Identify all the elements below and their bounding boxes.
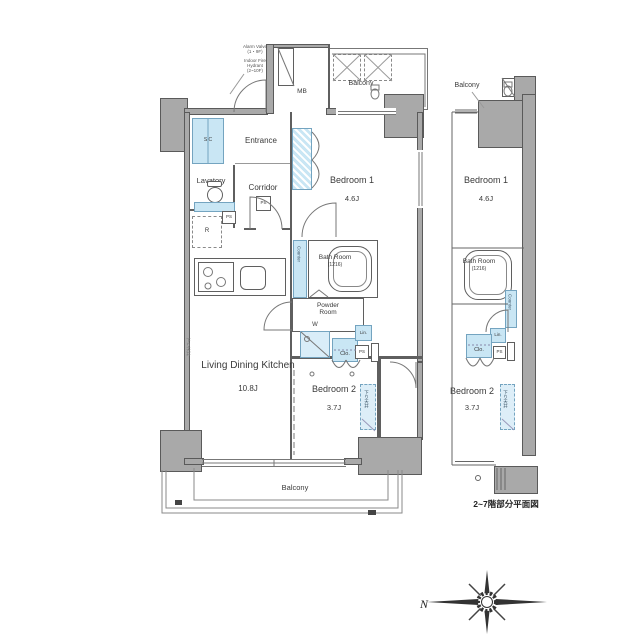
- bathroom-label: Bath Room: [304, 254, 366, 261]
- sub-bathroom-label: Bath Room: [450, 258, 508, 265]
- counter-label: Counter: [296, 246, 301, 262]
- wall-segment: [358, 437, 422, 475]
- partition: [244, 228, 256, 230]
- bedroom1-size: 4.6J: [312, 195, 392, 204]
- symbol-circle: [310, 372, 314, 376]
- sub-ps-label: PS: [493, 349, 506, 354]
- sub-plan-caption: 2~7階部分平面図: [450, 500, 562, 510]
- meter-slot: [371, 343, 379, 362]
- wall-segment: [478, 100, 526, 148]
- compass-ew-spike: [427, 599, 547, 606]
- washer-pan: [300, 331, 330, 358]
- symbol-circle: [350, 372, 354, 376]
- sub-linen-label: Lin.: [490, 332, 506, 337]
- corridor-label: Corridor: [236, 183, 290, 192]
- wall-segment: [184, 112, 190, 464]
- compass-ns-spike: [484, 570, 491, 634]
- wall-segment: [266, 44, 330, 48]
- partition: [377, 358, 381, 438]
- linen-label: Lin.: [355, 330, 372, 335]
- note-leader-line: [230, 74, 244, 94]
- balcony-hatch-box: [333, 54, 361, 81]
- wall-segment: [160, 430, 202, 472]
- lowered-ceiling-label: 下り天井: [364, 390, 369, 408]
- sub-lowered-ceiling-label: 下り天井: [503, 390, 508, 408]
- wall-segment: [522, 94, 536, 456]
- fridge-label: R: [192, 228, 222, 235]
- wall-segment: [184, 108, 268, 115]
- compass-diagonal-spikes: [469, 584, 505, 620]
- duct-box: [278, 48, 294, 86]
- entrance-label: Entrance: [232, 136, 290, 145]
- fire-hydrant-note: Indoor Fire Hydrant (2~10F): [236, 58, 274, 74]
- alarm-valve-note: Alarm Valve (1・9F): [236, 44, 274, 54]
- partition: [290, 358, 292, 460]
- floor-plan-image: Balcony MB Alarm Valve (1・9F) Indoor Fir…: [0, 0, 640, 639]
- balcony-top-label: Balcony: [326, 80, 396, 88]
- mb-label: MB: [290, 88, 314, 95]
- sub-counter-label: Counter: [507, 294, 512, 310]
- closet-fold-doors: [466, 358, 494, 366]
- sub-bedroom1-label: Bedroom 1: [446, 175, 526, 185]
- partition: [282, 228, 292, 230]
- sub-bathroom-size: (1216): [450, 267, 508, 273]
- washer-label: W: [303, 322, 327, 329]
- wall-segment: [417, 362, 423, 440]
- bathroom-size: (1216): [304, 263, 366, 269]
- sub-closet-box: [466, 334, 492, 358]
- window-gap: [417, 150, 423, 208]
- drain-mark: [368, 510, 376, 515]
- ldk-label: Living Dining Kitchen: [168, 360, 328, 372]
- ps-label: PS: [222, 214, 236, 219]
- drain-mark: [175, 500, 182, 505]
- duct-box: [502, 78, 515, 97]
- ps-label: PS: [256, 200, 271, 205]
- wall-line: [328, 44, 330, 110]
- balcony-bottom-label: Balcony: [250, 484, 340, 493]
- bedroom1-closet: [292, 128, 312, 190]
- sub-closet-label: Clo.: [466, 347, 492, 353]
- window-gap: [336, 108, 396, 115]
- wall-segment: [184, 458, 204, 465]
- wall-segment: [344, 458, 362, 465]
- compass-gear-ring: [478, 593, 496, 611]
- sub-meter-slot: [507, 342, 515, 361]
- sub-bedroom1-size: 4.6J: [446, 195, 526, 204]
- wall-segment: [494, 466, 538, 494]
- window-lines: [202, 459, 346, 467]
- balcony-hatch-box: [364, 54, 392, 81]
- partition: [235, 163, 290, 164]
- compass-center: [482, 597, 493, 608]
- compass-icon: N: [412, 562, 564, 638]
- ps-label: PS: [355, 349, 369, 354]
- stove: [198, 262, 234, 292]
- sic-label: SIC: [196, 138, 220, 144]
- bedroom1-label: Bedroom 1: [312, 175, 392, 185]
- kitchen-sink: [240, 266, 266, 290]
- lowered-ceiling-label: 下り天井: [186, 338, 191, 356]
- toilet-bowl: [207, 187, 223, 203]
- compass-north-label: N: [419, 597, 429, 611]
- sub-balcony-label: Balcony: [444, 82, 490, 90]
- ceiling-diagonals: [362, 419, 514, 431]
- wall-segment: [266, 44, 274, 114]
- powder-room-label: Powder Room: [300, 302, 356, 317]
